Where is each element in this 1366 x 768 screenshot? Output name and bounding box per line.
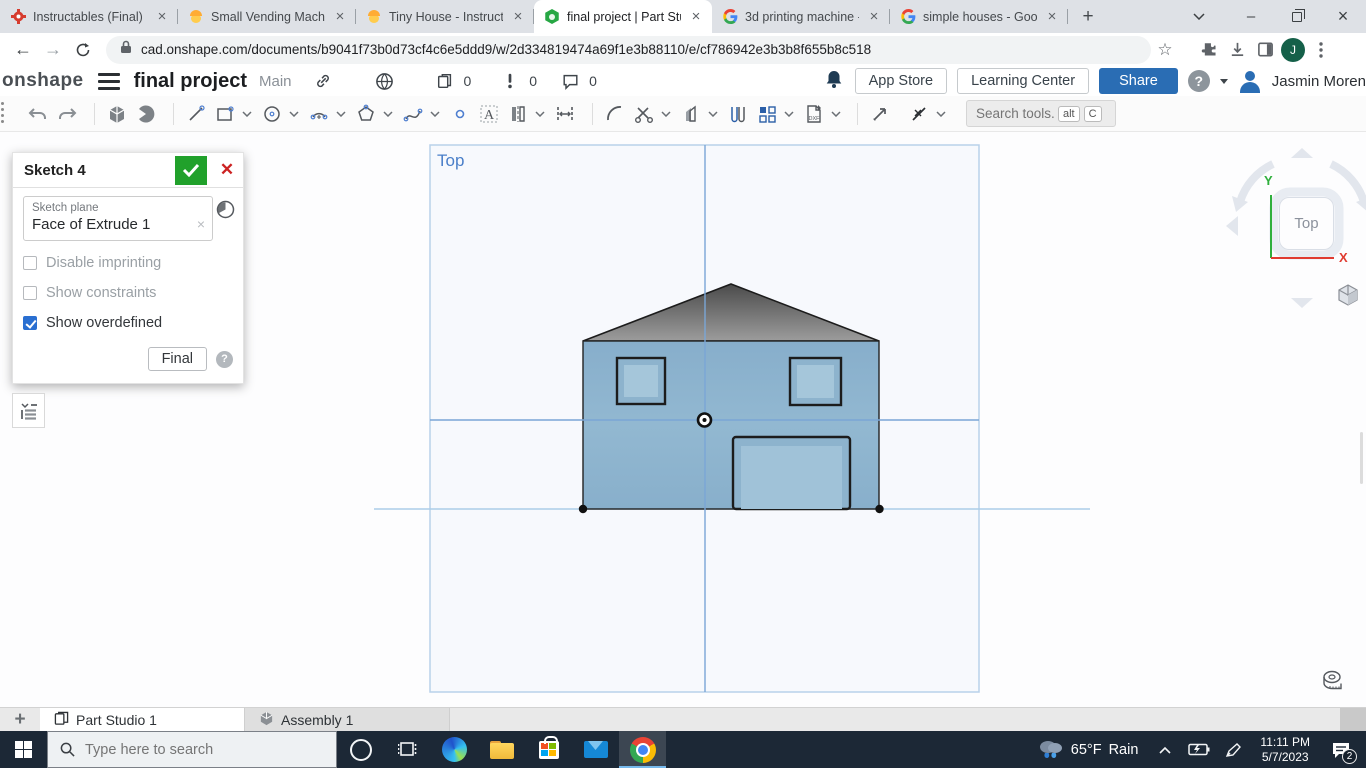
mail-button[interactable] [572, 731, 619, 768]
task-view-icon [398, 740, 418, 760]
final-button[interactable]: Final [148, 347, 207, 371]
circle-dropdown-icon[interactable] [287, 100, 301, 127]
tab-close-icon[interactable]: × [1044, 9, 1060, 25]
extrude-icon[interactable] [103, 100, 130, 127]
view-orientation-label: Top [437, 151, 464, 170]
tray-date: 5/7/2023 [1260, 750, 1310, 765]
browser-address-bar: ← → ☆ J [0, 33, 1366, 66]
notification-count-badge: 2 [1342, 749, 1357, 764]
extensions-puzzle-icon[interactable] [1195, 36, 1223, 64]
arc-dropdown-icon[interactable] [334, 100, 348, 127]
bookmark-star-icon[interactable]: ☆ [1151, 36, 1179, 64]
polygon-dropdown-icon[interactable] [381, 100, 395, 127]
google-icon [900, 9, 916, 25]
isometric-cube-icon[interactable] [1336, 283, 1360, 307]
notification-bell-icon[interactable] [823, 68, 845, 95]
clear-plane-icon[interactable]: × [197, 216, 205, 232]
x-axis-label: X [1339, 250, 1348, 265]
sketch-origin-dot [703, 418, 707, 422]
globe-icon[interactable] [370, 69, 400, 93]
link-icon[interactable] [308, 69, 338, 93]
y-axis-label: Y [1264, 173, 1273, 188]
onshape-bottom-tab-bar: + Part Studio 1 Assembly 1 [0, 707, 1366, 731]
document-title[interactable]: final project [134, 70, 247, 93]
sketch-dialog: Sketch 4 ✕ Sketch plane Face of Extrude … [12, 152, 244, 384]
cancel-sketch-button[interactable]: ✕ [215, 156, 239, 185]
undo-icon[interactable] [24, 100, 51, 127]
forward-button[interactable]: → [38, 36, 68, 64]
alert-icon[interactable] [495, 69, 525, 93]
sketch-plane-label: Sketch plane [32, 202, 204, 214]
tab-part-studio-1[interactable]: Part Studio 1 [40, 708, 245, 731]
tab-close-icon[interactable]: × [510, 9, 526, 25]
user-name[interactable]: Jasmin Moren [1272, 73, 1366, 90]
search-tools-input[interactable] [976, 106, 1054, 121]
point-tool-icon[interactable] [446, 100, 473, 127]
checkbox-label: Disable imprinting [46, 255, 161, 271]
insert-new-tab-button[interactable]: + [0, 708, 40, 731]
tab-title: Tiny House - Instructa [389, 10, 503, 24]
browser-tab-strip: Instructables (Final) × Small Vending Ma… [0, 0, 1366, 33]
google-icon [722, 9, 738, 25]
sketch-dialog-title: Sketch 4 [13, 162, 175, 179]
new-tab-button[interactable]: + [1074, 3, 1102, 31]
dialog-help-icon[interactable]: ? [216, 351, 233, 368]
polygon-tool-icon[interactable] [352, 100, 379, 127]
assembly-icon [259, 711, 274, 729]
history-clock-icon[interactable] [216, 200, 235, 224]
chrome-icon [630, 737, 656, 763]
sketch-dialog-header: Sketch 4 ✕ [13, 153, 243, 188]
system-tray: 65°F Rain 11:11 PM 5/7/2023 2 [1030, 731, 1366, 768]
taskbar-search-input[interactable] [85, 742, 305, 758]
sketch-plane-value: Face of Extrude 1 [32, 216, 204, 233]
screen: Instructables (Final) × Small Vending Ma… [0, 0, 1366, 768]
shortcut-alt-badge: alt [1058, 106, 1080, 122]
battery-icon[interactable] [1184, 731, 1214, 768]
canvas-scrollbar[interactable] [1360, 432, 1363, 484]
onshape-header: onshape final project Main 0 0 0 App Sto… [0, 66, 1366, 96]
offset-dropdown-icon[interactable] [706, 100, 720, 127]
mail-icon [584, 741, 608, 758]
dxf-import-icon[interactable]: DXF [800, 100, 827, 127]
checkbox-show-constraints[interactable]: Show constraints [23, 285, 233, 301]
file-explorer-icon [490, 741, 514, 759]
checkbox-label: Show constraints [46, 285, 156, 301]
checkbox-checked-icon[interactable] [23, 316, 37, 330]
spline-tool-icon[interactable] [399, 100, 426, 127]
bottom-tab-label: Assembly 1 [281, 712, 353, 728]
weather-condition: Rain [1109, 742, 1139, 758]
app-store-button[interactable]: App Store [855, 68, 948, 94]
tab-close-icon[interactable]: × [332, 9, 348, 25]
instructables-icon [10, 9, 26, 25]
window-controls: – × [1228, 0, 1366, 33]
reload-button[interactable] [68, 36, 98, 64]
checkbox-label: Show overdefined [46, 315, 162, 331]
rotate-left-arrow[interactable] [1226, 216, 1238, 236]
construction-dropdown-icon[interactable] [934, 100, 948, 127]
tab-final-project-active[interactable]: final project | Part Stu × [534, 0, 712, 33]
house-garage-panel [741, 446, 842, 509]
start-button[interactable] [0, 731, 47, 768]
microsoft-store-button[interactable] [525, 731, 572, 768]
toolbar-drag-handle[interactable] [1, 102, 4, 123]
tab-close-icon[interactable]: × [866, 9, 882, 25]
close-window-button[interactable]: × [1320, 0, 1366, 33]
help-button[interactable]: ? [1188, 70, 1210, 92]
restore-button[interactable] [1274, 0, 1320, 33]
svg-text:A: A [483, 108, 494, 123]
help-caret-icon[interactable] [1220, 79, 1228, 84]
task-view-button[interactable] [384, 731, 431, 768]
tab-tiny-house[interactable]: Tiny House - Instructa × [356, 0, 534, 33]
versions-count: 0 [464, 73, 472, 89]
circle-tool-icon[interactable] [258, 100, 285, 127]
worker-emoji-icon [188, 9, 204, 25]
construction-tool-icon[interactable] [905, 100, 932, 127]
checkbox-show-overdefined[interactable]: Show overdefined [23, 315, 233, 331]
tab-simple-houses[interactable]: simple houses - Goog × [890, 0, 1068, 33]
bottom-tab-label: Part Studio 1 [76, 712, 157, 728]
sketch-vertex-right[interactable] [875, 505, 883, 513]
avatar-initial: J [1281, 38, 1305, 62]
trim-dropdown-icon[interactable] [659, 100, 673, 127]
comments-count: 0 [589, 73, 597, 89]
part-studio-icon [54, 711, 69, 729]
worker-emoji-icon [366, 9, 382, 25]
measure-tool-icon[interactable] [866, 100, 893, 127]
slot-tool-icon[interactable] [724, 100, 751, 127]
header-right-actions: App Store Learning Center Share ? Jasmin… [823, 68, 1366, 95]
tab-title: simple houses - Goog [923, 10, 1037, 24]
hamburger-menu-icon[interactable] [98, 70, 120, 92]
show-hidden-icons-caret[interactable] [1150, 731, 1180, 768]
cortana-icon [350, 739, 372, 761]
sketch-dialog-body: Sketch plane Face of Extrude 1 × Disable… [13, 188, 243, 383]
tab-close-icon[interactable]: × [154, 9, 170, 25]
minimize-button[interactable]: – [1228, 0, 1274, 33]
mirror-tool-icon[interactable] [504, 100, 531, 127]
user-avatar-icon[interactable] [1238, 69, 1262, 93]
checkbox-icon[interactable] [23, 256, 37, 270]
side-panel-icon[interactable] [1251, 36, 1279, 64]
download-icon[interactable] [1223, 36, 1251, 64]
windows-taskbar: 65°F Rain 11:11 PM 5/7/2023 2 [0, 731, 1366, 768]
rotate-down-arrow[interactable] [1291, 298, 1313, 308]
revolve-icon[interactable] [132, 100, 159, 127]
dimension-tool-icon[interactable] [551, 100, 578, 127]
arc-tool-icon[interactable] [305, 100, 332, 127]
learning-center-button[interactable]: Learning Center [957, 68, 1089, 94]
tab-title: 3d printing machine - [745, 10, 859, 24]
tab-scroll-button[interactable] [1340, 708, 1366, 731]
edge-icon [442, 737, 467, 762]
graphics-canvas[interactable]: Top Sket [0, 132, 1366, 707]
sketch-vertex-left[interactable] [579, 505, 587, 513]
share-button[interactable]: Share [1099, 68, 1178, 94]
tray-time: 11:11 PM [1260, 735, 1310, 750]
pattern-dropdown-icon[interactable] [782, 100, 796, 127]
alerts-count: 0 [529, 73, 537, 89]
weather-widget[interactable]: 65°F Rain [1030, 739, 1147, 761]
weather-temp: 65°F [1071, 742, 1102, 758]
mirror-dropdown-icon[interactable] [533, 100, 547, 127]
checkbox-icon[interactable] [23, 286, 37, 300]
chrome-menu-icon[interactable] [1307, 36, 1335, 64]
tab-title: Small Vending Machin [211, 10, 325, 24]
tab-instructables[interactable]: Instructables (Final) × [0, 0, 178, 33]
tab-title: Instructables (Final) [33, 10, 147, 24]
sketch-toolbar: A DXF [0, 96, 1366, 132]
view-cube: Top Y X [1218, 140, 1366, 320]
shortcut-c-badge: C [1084, 106, 1102, 122]
spline-dropdown-icon[interactable] [428, 100, 442, 127]
tab-close-icon[interactable]: × [688, 9, 704, 25]
accept-sketch-button[interactable] [175, 156, 207, 185]
tab-title: final project | Part Stu [567, 10, 681, 24]
url-input[interactable] [141, 42, 1137, 57]
profile-avatar[interactable]: J [1279, 36, 1307, 64]
back-button[interactable]: ← [8, 36, 38, 64]
cortana-button[interactable] [337, 731, 384, 768]
tab-search-caret-icon[interactable] [1182, 0, 1216, 33]
taskbar-search-box[interactable] [47, 731, 337, 768]
sketch-plane-field[interactable]: Sketch plane Face of Extrude 1 × [23, 196, 213, 241]
store-icon [539, 741, 559, 759]
clock-widget[interactable]: 11:11 PM 5/7/2023 [1252, 735, 1318, 765]
comments-icon[interactable] [555, 69, 585, 93]
pen-icon[interactable] [1218, 731, 1248, 768]
offset-tool-icon[interactable] [677, 100, 704, 127]
search-tools-box[interactable]: alt C [966, 100, 1116, 127]
workspace-branch[interactable]: Main [259, 73, 292, 90]
rotate-up-arrow[interactable] [1291, 148, 1313, 158]
chrome-button-active[interactable] [619, 731, 666, 768]
onshape-icon [544, 9, 560, 25]
redo-icon[interactable] [53, 100, 80, 127]
view-cube-top-face[interactable]: Top [1279, 197, 1334, 250]
pattern-tool-icon[interactable] [753, 100, 780, 127]
sketch-dialog-footer: Final ? [23, 347, 233, 371]
checkbox-disable-imprinting[interactable]: Disable imprinting [23, 255, 233, 271]
rectangle-dropdown-icon[interactable] [240, 100, 254, 127]
house-window-right-pane [797, 365, 834, 398]
restore-icon [1292, 12, 1302, 22]
dxf-dropdown-icon[interactable] [829, 100, 843, 127]
https-lock-icon [120, 40, 132, 59]
trim-tool-icon[interactable] [630, 100, 657, 127]
onshape-logo[interactable]: onshape [2, 70, 84, 92]
file-explorer-button[interactable] [478, 731, 525, 768]
rain-cloud-icon [1038, 739, 1064, 761]
search-icon [60, 742, 75, 757]
feature-list-toggle-button[interactable] [12, 393, 45, 428]
line-tool-icon[interactable] [182, 100, 209, 127]
tab-small-vending-machine[interactable]: Small Vending Machin × [178, 0, 356, 33]
fillet-tool-icon[interactable] [601, 100, 628, 127]
action-center-button[interactable]: 2 [1322, 731, 1360, 768]
url-omnibox[interactable] [106, 36, 1151, 64]
tab-3d-printing-machine[interactable]: 3d printing machine - × [712, 0, 890, 33]
svg-text:DXF: DXF [808, 116, 820, 122]
measure-tape-icon[interactable] [1320, 670, 1344, 695]
edge-button[interactable] [431, 731, 478, 768]
rectangle-tool-icon[interactable] [211, 100, 238, 127]
tab-assembly-1[interactable]: Assembly 1 [245, 708, 450, 731]
text-tool-icon[interactable]: A [475, 100, 502, 127]
versions-icon[interactable] [430, 69, 460, 93]
house-window-left-pane [624, 365, 658, 397]
